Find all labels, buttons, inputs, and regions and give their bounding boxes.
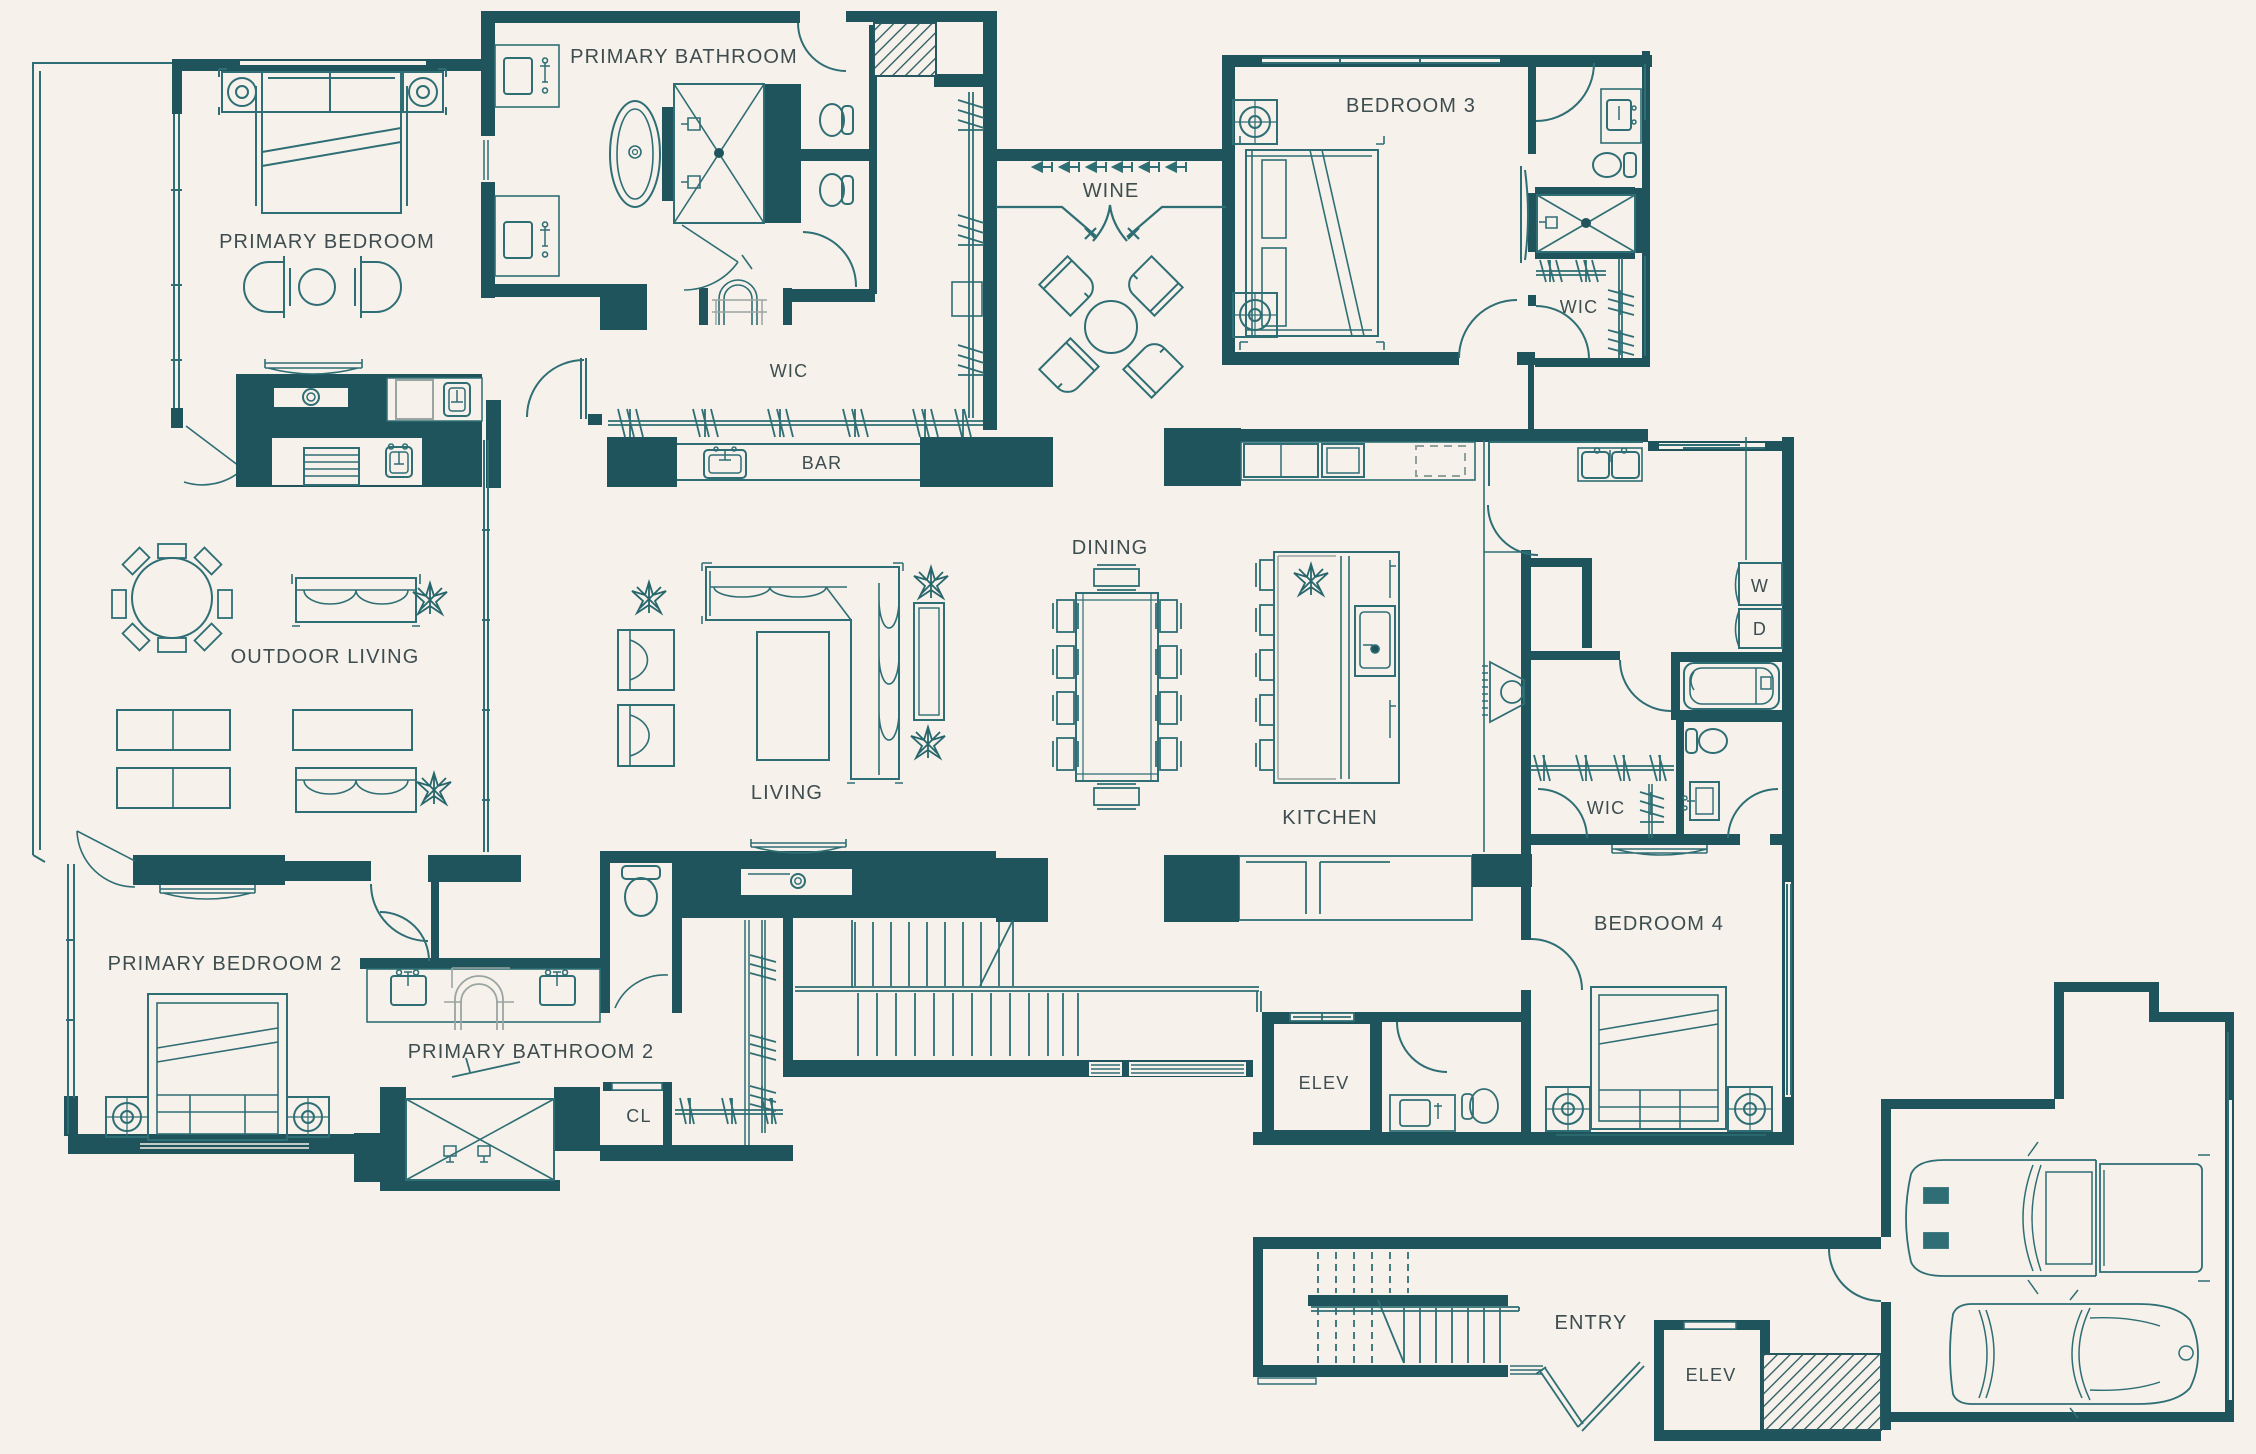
svg-text:CL: CL (626, 1106, 651, 1126)
svg-text:DINING: DINING (1072, 537, 1149, 559)
svg-text:ELEV: ELEV (1686, 1365, 1737, 1385)
svg-text:BAR: BAR (802, 453, 843, 473)
svg-text:KITCHEN: KITCHEN (1282, 807, 1377, 829)
svg-text:ENTRY: ENTRY (1555, 1312, 1628, 1334)
svg-text:D: D (1753, 619, 1767, 639)
svg-text:BEDROOM 4: BEDROOM 4 (1594, 913, 1724, 935)
svg-text:WINE: WINE (1083, 180, 1140, 202)
svg-text:BEDROOM 3: BEDROOM 3 (1346, 95, 1476, 117)
svg-text:PRIMARY BATHROOM 2: PRIMARY BATHROOM 2 (408, 1041, 655, 1063)
svg-text:WIC: WIC (1587, 798, 1626, 818)
svg-text:OUTDOOR LIVING: OUTDOOR LIVING (231, 646, 420, 668)
svg-text:W: W (1751, 576, 1769, 596)
svg-text:ELEV: ELEV (1299, 1073, 1350, 1093)
svg-text:PRIMARY BEDROOM: PRIMARY BEDROOM (219, 231, 435, 253)
svg-text:WIC: WIC (1560, 297, 1599, 317)
svg-text:PRIMARY BATHROOM: PRIMARY BATHROOM (570, 46, 798, 68)
svg-text:WIC: WIC (770, 361, 809, 381)
svg-text:LIVING: LIVING (751, 782, 823, 804)
svg-text:PRIMARY BEDROOM 2: PRIMARY BEDROOM 2 (108, 953, 343, 975)
